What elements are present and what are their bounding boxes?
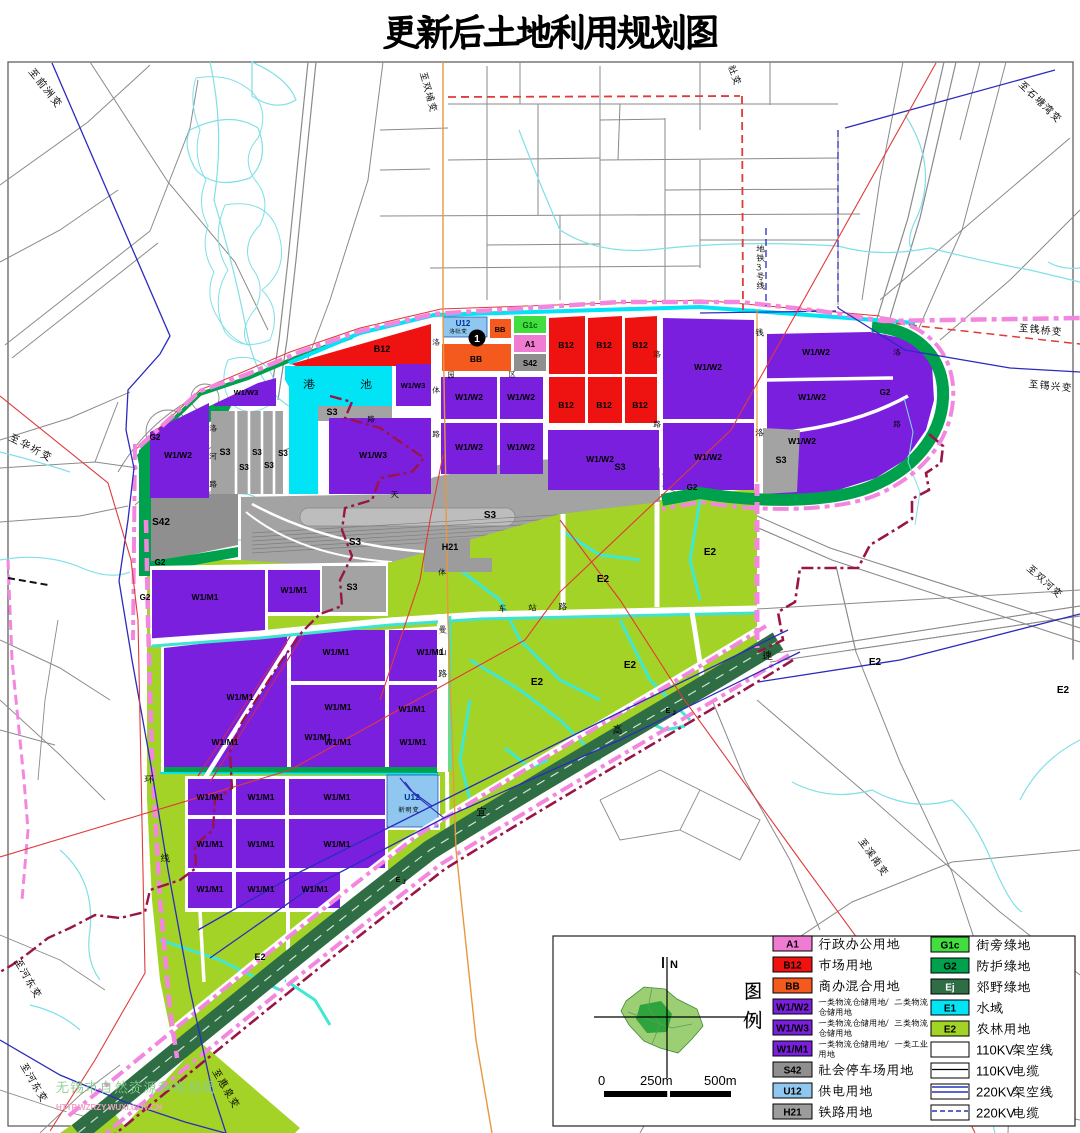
- svg-text:E2: E2: [597, 574, 610, 585]
- svg-text:W1/W2: W1/W2: [694, 452, 722, 462]
- svg-text:W1/M1: W1/M1: [248, 839, 275, 849]
- svg-text:W1/M1: W1/M1: [325, 702, 352, 712]
- svg-text:E2: E2: [1057, 685, 1070, 696]
- svg-text:BB: BB: [785, 982, 799, 993]
- svg-text:Ej: Ej: [945, 983, 955, 994]
- svg-text:W1/M1: W1/M1: [400, 737, 427, 747]
- svg-text:W1/M1: W1/M1: [248, 792, 275, 802]
- svg-text:W1/M1: W1/M1: [197, 884, 224, 894]
- svg-text:B12: B12: [558, 400, 574, 410]
- svg-text:0: 0: [598, 1073, 605, 1088]
- svg-text:E2: E2: [531, 677, 544, 688]
- svg-text:HTTP.WZRZY.WUXI.GOV.CN: HTTP.WZRZY.WUXI.GOV.CN: [56, 1103, 162, 1112]
- svg-text:W1/M1: W1/M1: [324, 839, 351, 849]
- svg-text:B12: B12: [632, 340, 648, 350]
- svg-text:G1c: G1c: [522, 321, 538, 330]
- svg-text:U12: U12: [456, 319, 471, 328]
- svg-text:S3: S3: [326, 407, 337, 417]
- svg-text:W1/M1: W1/M1: [325, 737, 352, 747]
- svg-text:W1/M1: W1/M1: [192, 592, 219, 602]
- svg-text:W1/W3: W1/W3: [776, 1024, 809, 1035]
- svg-text:B12: B12: [558, 340, 574, 350]
- svg-text:U12: U12: [404, 792, 420, 802]
- svg-text:H21: H21: [783, 1108, 802, 1119]
- svg-text:W1/M1: W1/M1: [777, 1045, 809, 1056]
- svg-text:U12: U12: [783, 1087, 802, 1098]
- svg-text:J: J: [402, 880, 405, 886]
- svg-text:W1/M1: W1/M1: [227, 692, 254, 702]
- svg-text:G2: G2: [880, 388, 891, 397]
- svg-text:110KV: 110KV: [976, 1043, 1014, 1058]
- svg-text:S3: S3: [219, 447, 230, 457]
- svg-text:W1/M1: W1/M1: [197, 792, 224, 802]
- svg-text:E1: E1: [944, 1004, 957, 1015]
- svg-text:A1: A1: [525, 340, 536, 349]
- svg-text:B12: B12: [596, 400, 612, 410]
- svg-text:220KV: 220KV: [976, 1085, 1015, 1100]
- svg-text:S42: S42: [784, 1066, 802, 1077]
- svg-text:1: 1: [474, 333, 480, 345]
- svg-text:W1/W2: W1/W2: [164, 450, 192, 460]
- svg-text:W1/W2: W1/W2: [455, 392, 483, 402]
- svg-text:G2: G2: [943, 962, 957, 973]
- svg-text:S3: S3: [349, 537, 362, 548]
- svg-text:G1c: G1c: [941, 941, 960, 952]
- svg-text:E2: E2: [944, 1025, 957, 1036]
- svg-text:H21: H21: [442, 542, 459, 552]
- svg-text:S3: S3: [252, 448, 262, 457]
- svg-text:E2: E2: [869, 657, 882, 668]
- svg-text:W1/M1: W1/M1: [302, 884, 329, 894]
- svg-text:W1/M1: W1/M1: [324, 792, 351, 802]
- svg-text:E: E: [666, 708, 671, 715]
- svg-text:BB: BB: [470, 354, 482, 364]
- svg-text:A1: A1: [786, 940, 799, 951]
- svg-text:W1/W2: W1/W2: [507, 442, 535, 452]
- svg-text:G2: G2: [155, 558, 166, 567]
- svg-text:J: J: [672, 711, 675, 717]
- svg-text:S3: S3: [239, 463, 249, 472]
- svg-text:G2: G2: [687, 483, 698, 492]
- svg-text:W1/W3: W1/W3: [359, 450, 387, 460]
- svg-text:W1/W2: W1/W2: [788, 436, 816, 446]
- svg-text:W1/W2: W1/W2: [776, 1003, 809, 1014]
- svg-text:250m: 250m: [640, 1073, 673, 1088]
- svg-text:W1/M1: W1/M1: [281, 585, 308, 595]
- svg-text:W1/W2: W1/W2: [586, 454, 614, 464]
- svg-text:S42: S42: [523, 359, 538, 368]
- svg-text:W1/W2: W1/W2: [798, 392, 826, 402]
- svg-text:B12: B12: [374, 344, 391, 354]
- svg-text:S3: S3: [278, 449, 288, 458]
- svg-text:W1/M1: W1/M1: [323, 647, 350, 657]
- svg-text:S3: S3: [264, 461, 274, 470]
- svg-text:S42: S42: [152, 517, 170, 528]
- svg-text:W1/W2: W1/W2: [802, 347, 830, 357]
- svg-text:W1/M1: W1/M1: [399, 704, 426, 714]
- svg-text:G2: G2: [150, 433, 161, 442]
- svg-text:S3: S3: [775, 455, 786, 465]
- svg-text:110KV: 110KV: [976, 1064, 1014, 1079]
- svg-text:S3: S3: [614, 462, 625, 472]
- svg-text:S3: S3: [484, 510, 497, 521]
- svg-text:W1/W3: W1/W3: [401, 381, 426, 390]
- svg-text:B12: B12: [783, 961, 802, 972]
- svg-text:N: N: [670, 959, 678, 971]
- svg-text:W1/M1: W1/M1: [212, 737, 239, 747]
- svg-text:E2: E2: [624, 660, 637, 671]
- svg-text:500m: 500m: [704, 1073, 737, 1088]
- svg-text:E2: E2: [254, 952, 265, 962]
- svg-text:B12: B12: [596, 340, 612, 350]
- svg-text:BB: BB: [495, 325, 506, 334]
- svg-text:S3: S3: [346, 582, 357, 592]
- svg-text:E: E: [396, 877, 401, 884]
- svg-text:W1/W3: W1/W3: [234, 388, 259, 397]
- svg-text:W1/W2: W1/W2: [455, 442, 483, 452]
- svg-text:E2: E2: [704, 547, 717, 558]
- svg-text:W1/M1: W1/M1: [197, 839, 224, 849]
- svg-text:B12: B12: [632, 400, 648, 410]
- svg-text:W1/W2: W1/W2: [694, 362, 722, 372]
- svg-text:W1/M1: W1/M1: [248, 884, 275, 894]
- svg-text:G2: G2: [140, 593, 151, 602]
- svg-text:220KV: 220KV: [976, 1106, 1015, 1121]
- svg-text:W1/W2: W1/W2: [507, 392, 535, 402]
